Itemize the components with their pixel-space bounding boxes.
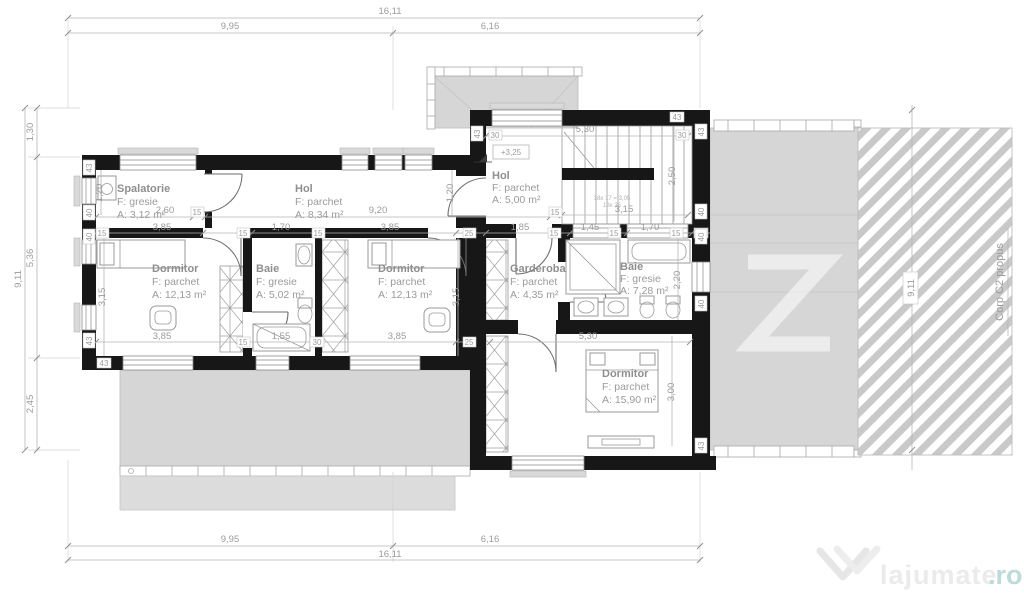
room-dormitor2-floor: F: parchet bbox=[378, 276, 425, 288]
room-garderoba-floor: F: parchet bbox=[510, 276, 557, 288]
room-dormitor3-floor: F: parchet bbox=[602, 381, 649, 393]
dim-right-total: 9,11 bbox=[906, 279, 917, 297]
marker-40: 40 bbox=[85, 232, 94, 241]
dim-d3-h: 3,00 bbox=[666, 383, 677, 402]
room-baie1-area: A: 5,02 m² bbox=[256, 289, 305, 301]
watermark-tld: .ro bbox=[988, 560, 1023, 590]
dim-d1-w: 3,85 bbox=[153, 222, 172, 233]
dim-hol-w: 9,20 bbox=[369, 205, 388, 216]
corp-c2-text: Corp C2 propus bbox=[994, 243, 1006, 321]
dim-stair-b: 3,15 bbox=[615, 204, 634, 215]
marker-40: 40 bbox=[85, 208, 94, 217]
marker-40: 40 bbox=[697, 299, 706, 308]
corp-c2-hatched-area bbox=[858, 128, 1012, 455]
room-hol2-area: A: 5,00 m² bbox=[492, 194, 541, 206]
room-hol1-area: A: 8,34 m² bbox=[295, 209, 344, 221]
dim-15: 15 bbox=[239, 338, 248, 347]
room-baie1-name: Baie bbox=[256, 263, 279, 275]
dim-30: 30 bbox=[491, 131, 500, 140]
dim-b2-w2: 1,70 bbox=[641, 222, 660, 233]
room-dormitor3-area: A: 15,90 m² bbox=[602, 394, 657, 406]
bottom-left-terrace bbox=[120, 370, 470, 510]
dim-15: 15 bbox=[314, 229, 323, 238]
dim-left-s1: 1,30 bbox=[25, 123, 36, 142]
dim-15: 15 bbox=[193, 208, 202, 217]
stair-note: 18x 17 = 3,05 bbox=[594, 196, 631, 202]
dim-g-w: 1,85 bbox=[511, 222, 530, 233]
dim-left-total: 9,11 bbox=[13, 270, 24, 288]
floor-plan-svg: 18x 17 = 3,05 18x 25 bbox=[0, 0, 1024, 593]
room-dormitor2-name: Dormitor bbox=[378, 263, 425, 275]
room-hol2-floor: F: parchet bbox=[492, 182, 539, 194]
marker-43: 43 bbox=[697, 127, 706, 136]
dim-b2-w1: 1,45 bbox=[581, 222, 600, 233]
dim-15: 15 bbox=[98, 229, 107, 238]
room-hol1-floor: F: parchet bbox=[295, 196, 342, 208]
dim-d1-h: 3,15 bbox=[97, 288, 108, 307]
dim-stair-h: 2,50 bbox=[667, 167, 678, 186]
dim-25: 25 bbox=[465, 229, 474, 238]
dim-15: 15 bbox=[550, 229, 559, 238]
room-dormitor2-area: A: 12,13 m² bbox=[378, 289, 433, 301]
dim-b1-bw: 1,55 bbox=[272, 331, 291, 342]
level-marker-value: +3,25 bbox=[501, 148, 522, 157]
armchair-2 bbox=[424, 308, 450, 332]
room-dormitor1-floor: F: parchet bbox=[152, 276, 199, 288]
watermark-brand: lajumate bbox=[880, 560, 998, 590]
floor-plan-screenshot: 18x 17 = 3,05 18x 25 bbox=[0, 0, 1024, 593]
dim-d1-bw: 3,85 bbox=[153, 331, 172, 342]
room-garderoba-name: Garderoba bbox=[510, 263, 567, 275]
dim-d3-w: 5,30 bbox=[579, 331, 598, 342]
dim-bottom-seg2: 6,16 bbox=[481, 534, 500, 545]
room-baie2-floor: F: gresie bbox=[620, 273, 661, 285]
dim-15: 15 bbox=[610, 229, 619, 238]
dim-b1-w: 1,70 bbox=[272, 222, 291, 233]
dim-hol-h: 1,20 bbox=[445, 184, 456, 203]
dim-top-seg2: 6,16 bbox=[481, 21, 500, 32]
dim-15: 15 bbox=[239, 229, 248, 238]
dim-30: 30 bbox=[313, 338, 322, 347]
room-dormitor1-area: A: 12,13 m² bbox=[152, 289, 207, 301]
dim-25: 25 bbox=[465, 338, 474, 347]
watermark: lajumate .ro bbox=[820, 549, 1023, 590]
dim-bottom-seg1: 9,95 bbox=[221, 534, 240, 545]
right-terrace bbox=[710, 120, 861, 457]
room-baie2-area: A: 7,28 m² bbox=[620, 285, 669, 297]
dresser bbox=[588, 436, 654, 448]
dim-parapet: 1,20 bbox=[94, 184, 105, 203]
room-baie1-floor: F: gresie bbox=[256, 276, 297, 288]
room-dormitor3-name: Dormitor bbox=[602, 368, 649, 380]
marker-40: 40 bbox=[697, 207, 706, 216]
dim-d2-w: 3,85 bbox=[381, 222, 400, 233]
toilet-2 bbox=[640, 296, 654, 304]
dim-stair-w: 5,30 bbox=[576, 124, 595, 135]
marker-43: 43 bbox=[100, 359, 109, 368]
room-baie2-name: Baie bbox=[620, 261, 643, 273]
dim-b2-h: 2,20 bbox=[672, 271, 683, 290]
dim-15: 15 bbox=[551, 208, 560, 217]
corp-c2-label: Corp C2 propus bbox=[994, 228, 1008, 336]
dim-d2-h: 3,15 bbox=[451, 288, 462, 307]
dim-top-total: 16,11 bbox=[378, 6, 401, 17]
room-dormitor1-name: Dormitor bbox=[152, 263, 199, 275]
dim-30: 30 bbox=[678, 131, 687, 140]
room-hol1-name: Hol bbox=[295, 183, 313, 195]
room-spalatorie-name: Spalatorie bbox=[117, 183, 170, 195]
marker-43: 43 bbox=[473, 129, 482, 138]
dim-top-seg1: 9,95 bbox=[221, 21, 240, 32]
marker-43: 43 bbox=[85, 336, 94, 345]
dim-left-s3: 2,45 bbox=[25, 395, 36, 414]
marker-43: 43 bbox=[673, 113, 682, 122]
room-spalatorie-area: A: 3,12 m² bbox=[117, 209, 166, 221]
dim-left-s2: 5,36 bbox=[25, 249, 36, 268]
room-hol2-name: Hol bbox=[492, 170, 510, 182]
dim-d2-bw: 3,85 bbox=[388, 331, 407, 342]
dim-bottom-total: 16,11 bbox=[378, 549, 401, 560]
marker-40: 40 bbox=[697, 232, 706, 241]
marker-43: 43 bbox=[697, 441, 706, 450]
armchair-1 bbox=[150, 306, 176, 330]
dim-15: 15 bbox=[672, 229, 681, 238]
marker-43: 43 bbox=[85, 163, 94, 172]
room-spalatorie-floor: F: gresie bbox=[117, 196, 158, 208]
room-garderoba-area: A: 4,35 m² bbox=[510, 289, 559, 301]
stair-balustrade bbox=[562, 168, 654, 180]
